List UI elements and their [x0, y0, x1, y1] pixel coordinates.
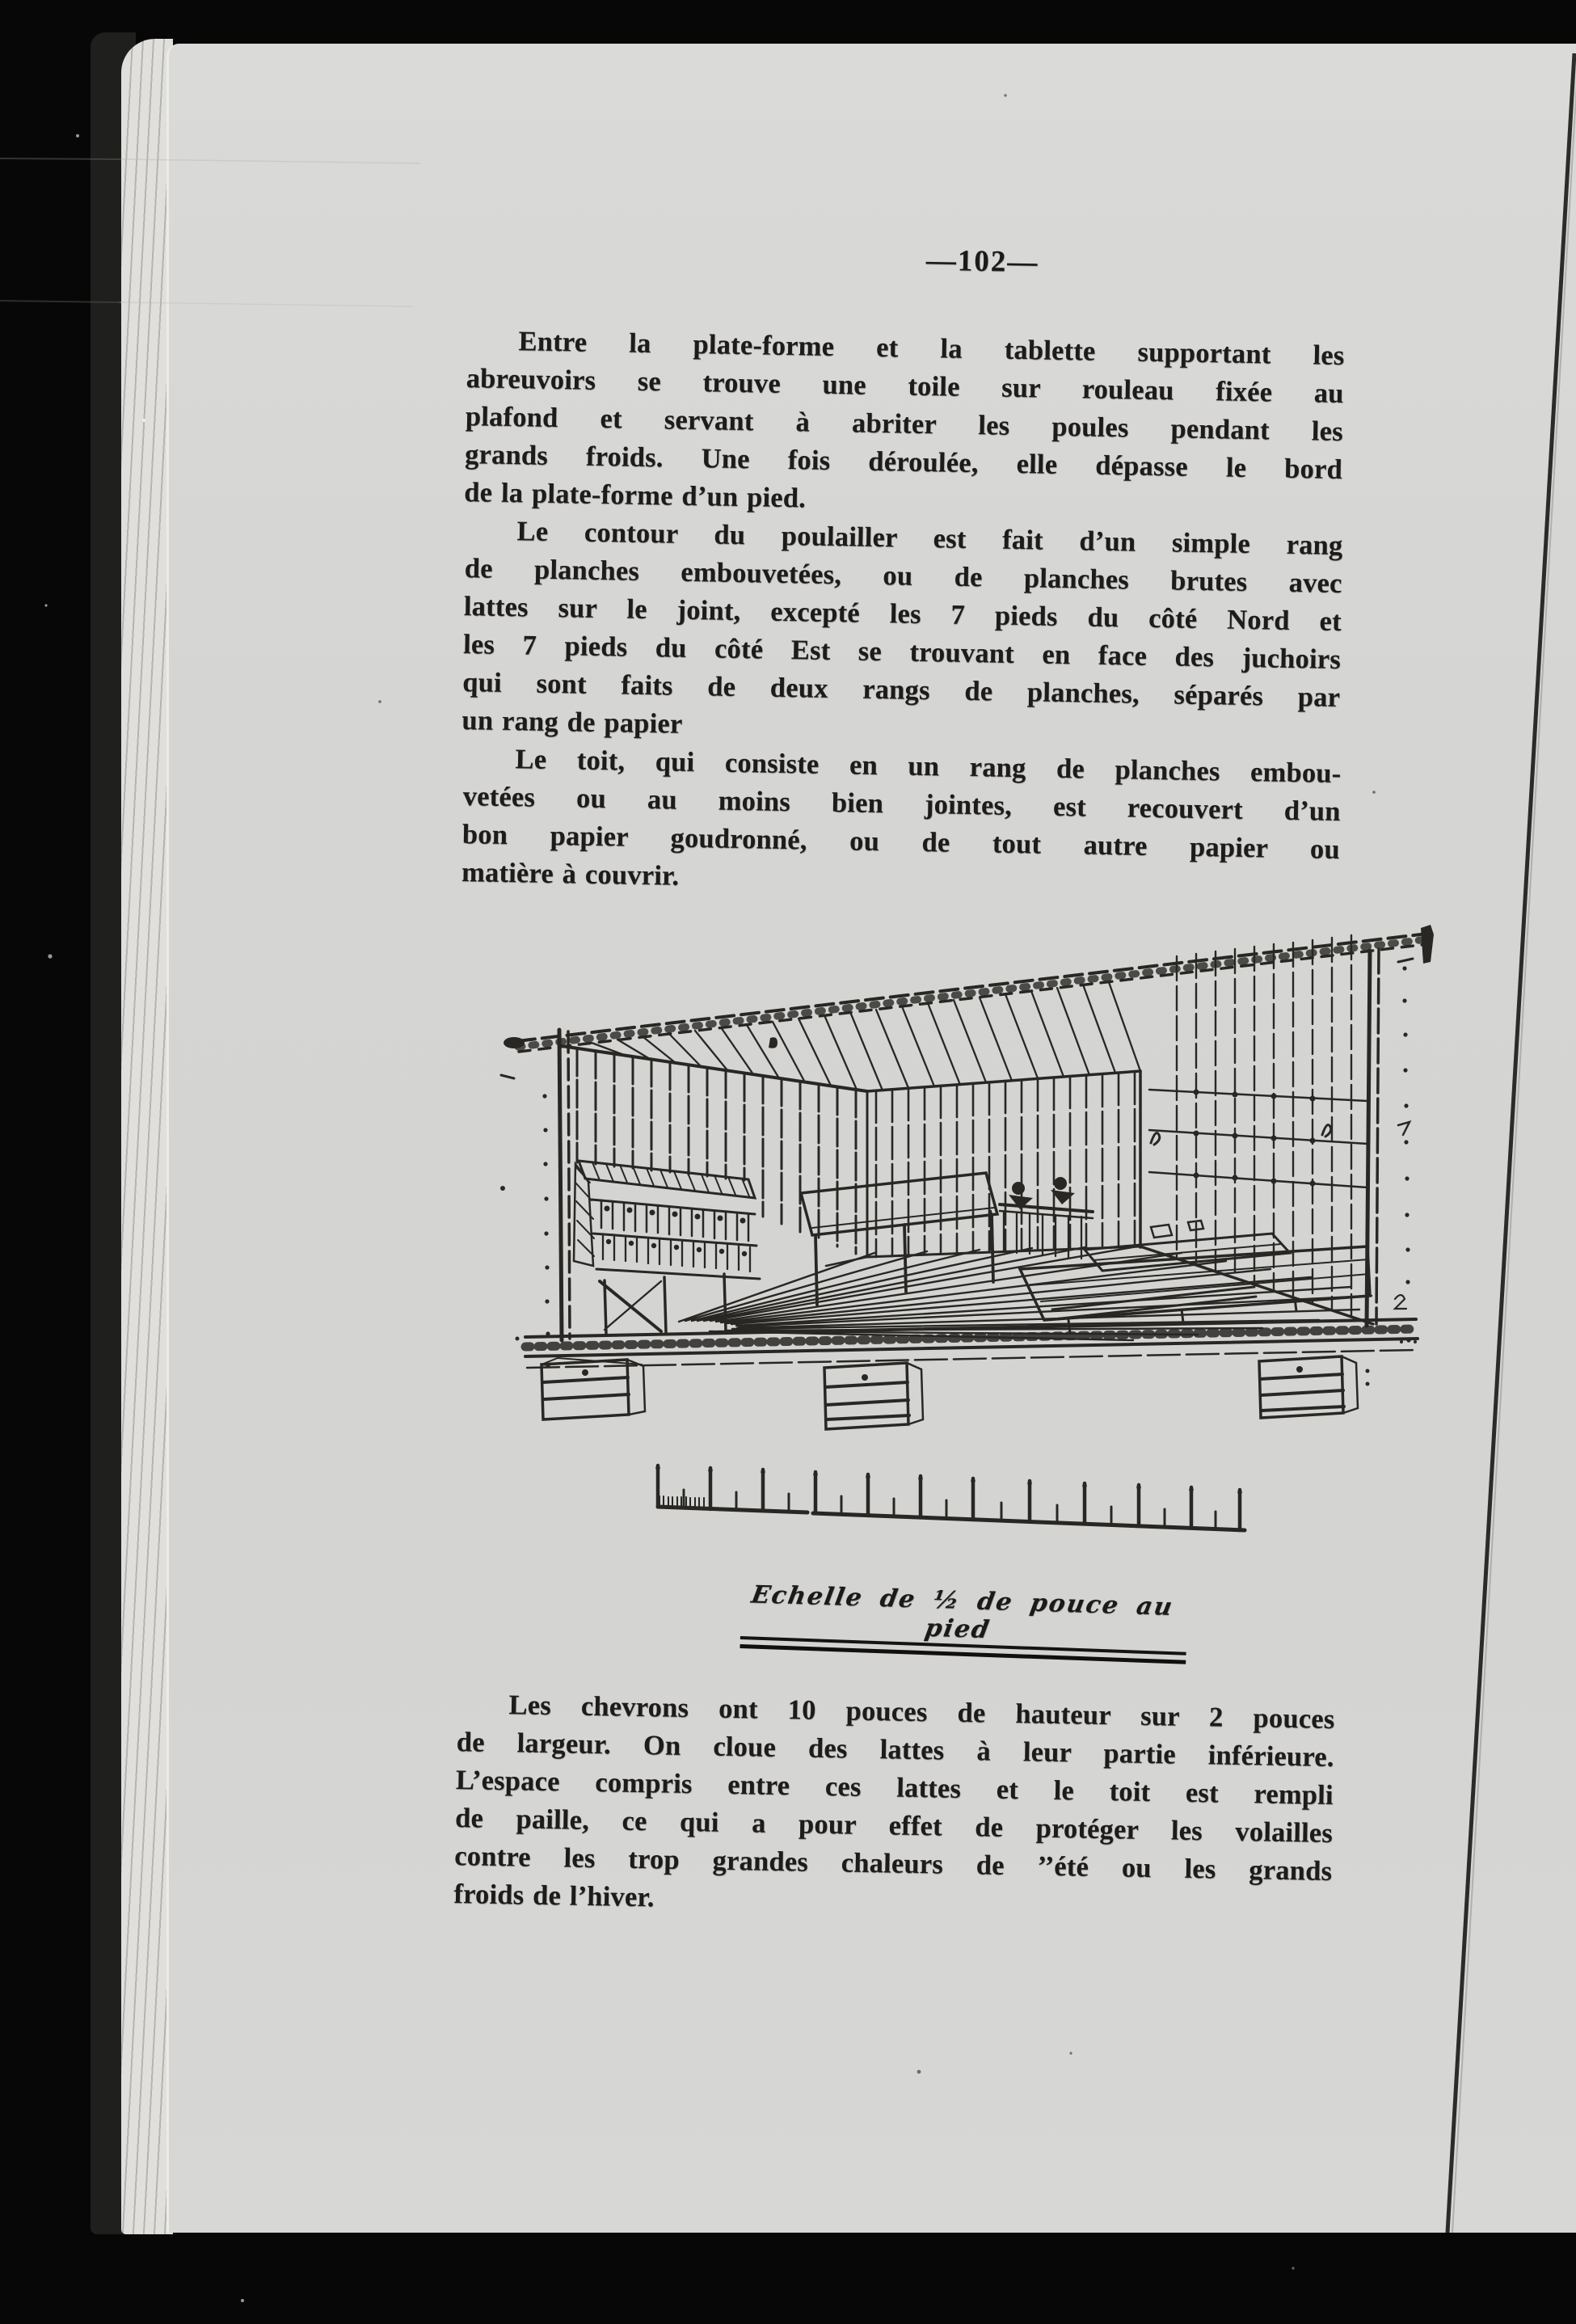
page-number: —102—	[893, 243, 1072, 280]
dimension-dots-left	[500, 1094, 550, 1368]
scanned-book-page: —102— Entre la plate-forme et la tablett…	[0, 0, 1576, 2324]
hen-silhouettes	[1009, 1177, 1075, 1209]
dimension-dots-right	[1400, 966, 1417, 1343]
paragraph-1: Entre la plate-forme et la tablette supp…	[464, 322, 1345, 527]
poultry-house-interior-figure	[454, 888, 1489, 1591]
scale-ruler	[655, 1466, 1245, 1530]
foundation-piers	[541, 1356, 1370, 1429]
paragraph-4: Les chevrons ont 10 pouces de hauteur su…	[453, 1685, 1335, 1929]
page-edge-stack	[121, 39, 173, 2234]
paragraph-2: Le contour du poulailler est fait d’un s…	[461, 512, 1343, 755]
paragraph-3: Le toit, qui consiste en un rang de plan…	[461, 740, 1342, 907]
